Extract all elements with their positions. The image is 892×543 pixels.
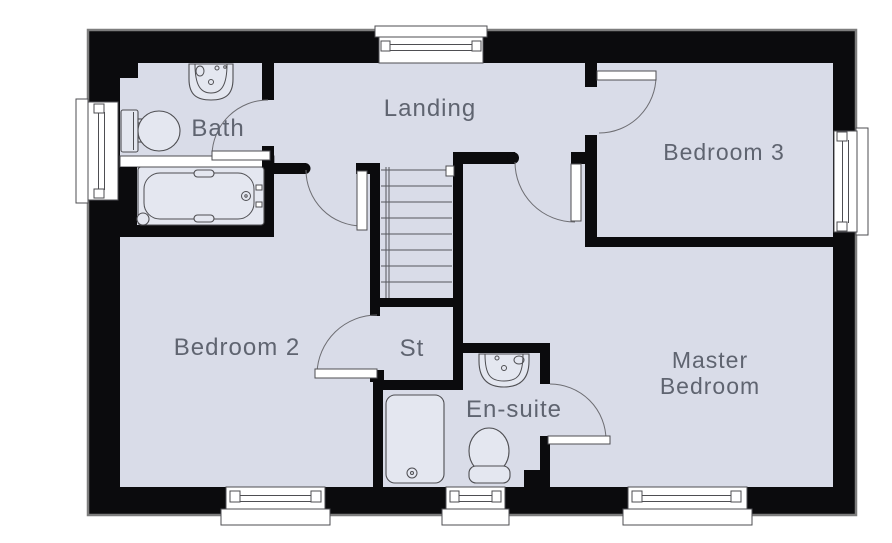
- wall-segment: [453, 152, 463, 390]
- bathtub-grip: [194, 170, 214, 177]
- window-sill: [375, 26, 487, 37]
- shower-tray-outer: [386, 395, 444, 483]
- window-cap: [381, 41, 390, 51]
- wall-segment: [524, 470, 541, 487]
- room-label-ensuite: En-suite: [466, 396, 562, 423]
- bath-sink: [189, 64, 233, 100]
- window-cap: [837, 132, 847, 141]
- door-leaf: [357, 171, 367, 230]
- room-label-master-line1: Master: [672, 347, 748, 373]
- door-leaf: [571, 164, 581, 221]
- room-label-bath: Bath: [191, 115, 244, 142]
- room-label-bedroom2: Bedroom 2: [174, 334, 300, 361]
- room-label-master-line2: Bedroom: [660, 373, 760, 399]
- ensuite-toilet: [469, 428, 510, 483]
- window-sill: [856, 128, 868, 235]
- bathtub-corner: [137, 213, 149, 225]
- door-stop: [300, 163, 311, 174]
- wall-segment: [453, 152, 515, 164]
- window-sill: [442, 509, 509, 525]
- wall-segment: [120, 225, 274, 237]
- window-cap: [837, 222, 847, 231]
- bath-toilet: [121, 110, 180, 152]
- wall-segment: [370, 163, 380, 307]
- window-cap: [94, 104, 104, 113]
- door-stop: [507, 152, 519, 164]
- window-cap: [450, 491, 459, 502]
- wall-segment: [373, 380, 383, 487]
- wall-segment: [373, 380, 463, 390]
- bathtub-control: [256, 185, 262, 190]
- window-bottom-master: [623, 487, 752, 525]
- window-left: [76, 99, 118, 203]
- floor-plan-canvas: Landing Bath Bedroom 3 Bedroom 2 St En-s…: [0, 0, 892, 543]
- room-label-bedroom3: Bedroom 3: [663, 139, 785, 165]
- window-bottom-bedroom2: [221, 487, 330, 525]
- window-bottom-ensuite: [442, 487, 509, 525]
- bathtub: [137, 167, 264, 225]
- wall-segment: [571, 152, 585, 164]
- ensuite-sink: [479, 354, 529, 387]
- wall-segment: [370, 298, 463, 307]
- wall-segment: [262, 63, 274, 100]
- toilet-bowl: [138, 111, 180, 151]
- stair-newel: [446, 166, 454, 176]
- window-sill: [221, 509, 330, 525]
- door-leaf: [212, 151, 270, 160]
- bathtub-control: [256, 202, 262, 207]
- toilet-cistern: [469, 466, 510, 483]
- room-label-landing: Landing: [384, 95, 476, 122]
- wall-segment: [585, 237, 833, 247]
- bathtub-grip: [194, 215, 214, 222]
- window-cap: [472, 41, 481, 51]
- window-frame: [834, 131, 857, 232]
- wall-segment: [585, 63, 597, 87]
- window-cap: [230, 491, 240, 502]
- window-cap: [632, 491, 642, 502]
- room-label-storage: St: [400, 335, 425, 362]
- door-leaf: [597, 71, 656, 80]
- window-right: [834, 128, 868, 235]
- wall-segment: [540, 353, 550, 384]
- window-frame: [628, 487, 747, 509]
- wall-segment: [453, 343, 550, 353]
- door-leaf: [548, 436, 610, 444]
- window-cap: [731, 491, 741, 502]
- window-sill: [623, 509, 752, 525]
- wall-segment: [120, 63, 138, 78]
- window-cap: [492, 491, 501, 502]
- window-cap: [311, 491, 321, 502]
- wall-segment: [585, 135, 597, 247]
- window-frame: [88, 102, 118, 200]
- window-top: [375, 26, 487, 63]
- window-sill: [76, 99, 88, 203]
- window-cap: [94, 189, 104, 198]
- shower-tray: [386, 395, 444, 483]
- toilet-cistern: [121, 110, 138, 152]
- window-frame: [226, 487, 325, 509]
- floor-plan: Landing Bath Bedroom 3 Bedroom 2 St En-s…: [0, 0, 892, 543]
- door-leaf: [315, 369, 377, 378]
